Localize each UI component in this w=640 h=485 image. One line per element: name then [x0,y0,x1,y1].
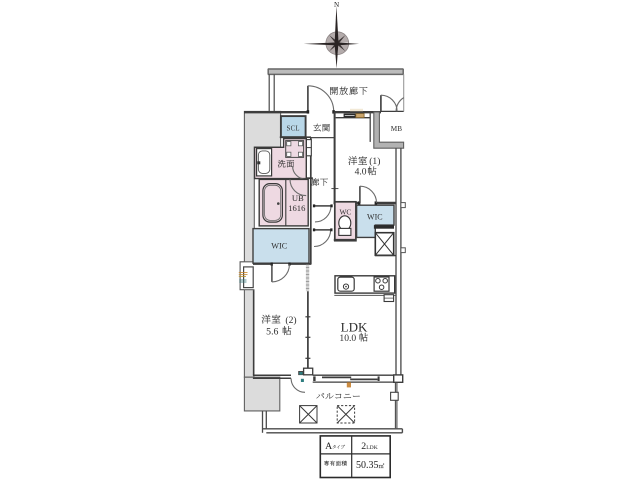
svg-text:10.0: 10.0 [339,333,356,344]
svg-text:SCL: SCL [287,126,300,133]
svg-text:A: A [325,441,332,452]
svg-text:N: N [334,1,340,9]
svg-text:WIC: WIC [367,213,383,222]
svg-text:4.0: 4.0 [355,167,367,177]
svg-text:UB: UB [292,193,304,203]
svg-text:(2): (2) [285,315,296,326]
svg-text:WIC: WIC [271,242,287,251]
svg-text:50.35: 50.35 [356,460,379,471]
svg-text:LDK: LDK [366,445,378,451]
svg-text:MB: MB [391,125,402,133]
svg-text:1616: 1616 [288,203,306,213]
svg-text:(1): (1) [369,156,380,167]
svg-text:WC: WC [339,208,351,217]
svg-text:5.6: 5.6 [266,326,278,337]
